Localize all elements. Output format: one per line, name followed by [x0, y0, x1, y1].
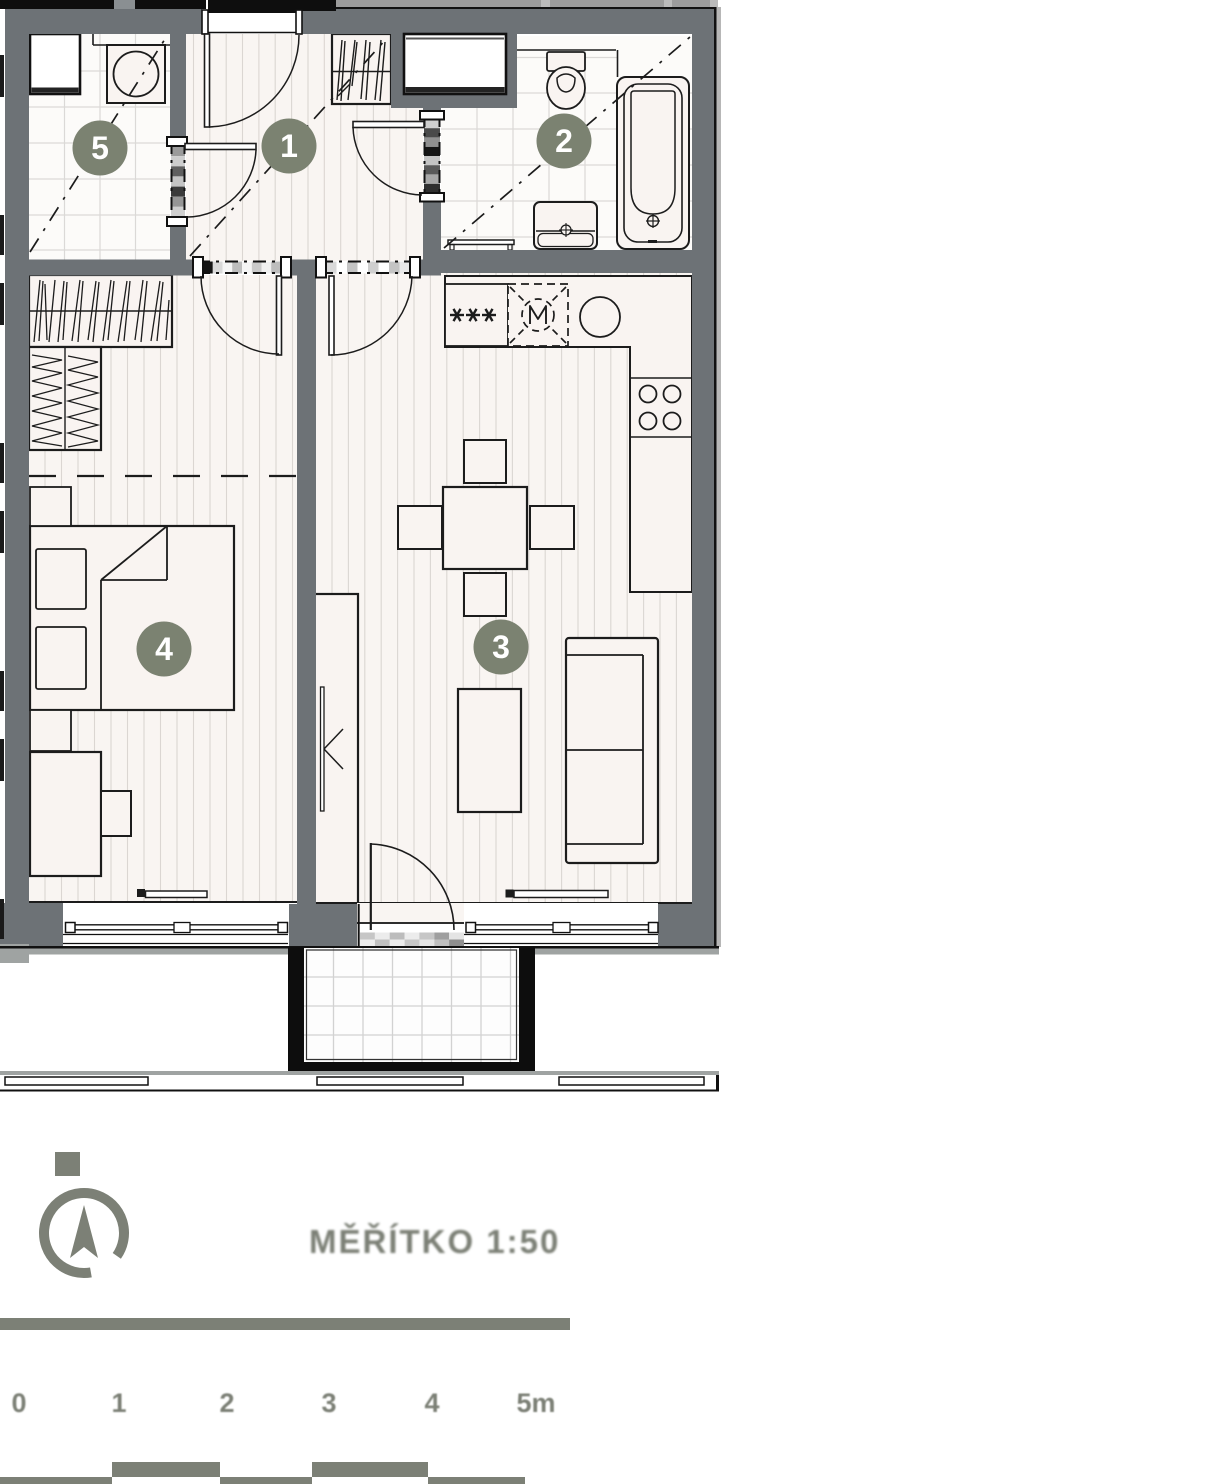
- svg-text:5: 5: [91, 130, 109, 166]
- svg-text:0: 0: [11, 1388, 26, 1418]
- svg-text:4: 4: [155, 631, 173, 667]
- svg-text:3: 3: [321, 1388, 336, 1418]
- svg-text:3: 3: [492, 629, 510, 665]
- svg-text:1: 1: [111, 1388, 126, 1418]
- svg-text:2: 2: [555, 123, 573, 159]
- svg-text:4: 4: [424, 1388, 439, 1418]
- svg-text:MĚŘÍTKO 1:50: MĚŘÍTKO 1:50: [309, 1223, 560, 1260]
- svg-text:5m: 5m: [516, 1388, 555, 1418]
- svg-text:2: 2: [219, 1388, 234, 1418]
- svg-text:1: 1: [280, 128, 298, 164]
